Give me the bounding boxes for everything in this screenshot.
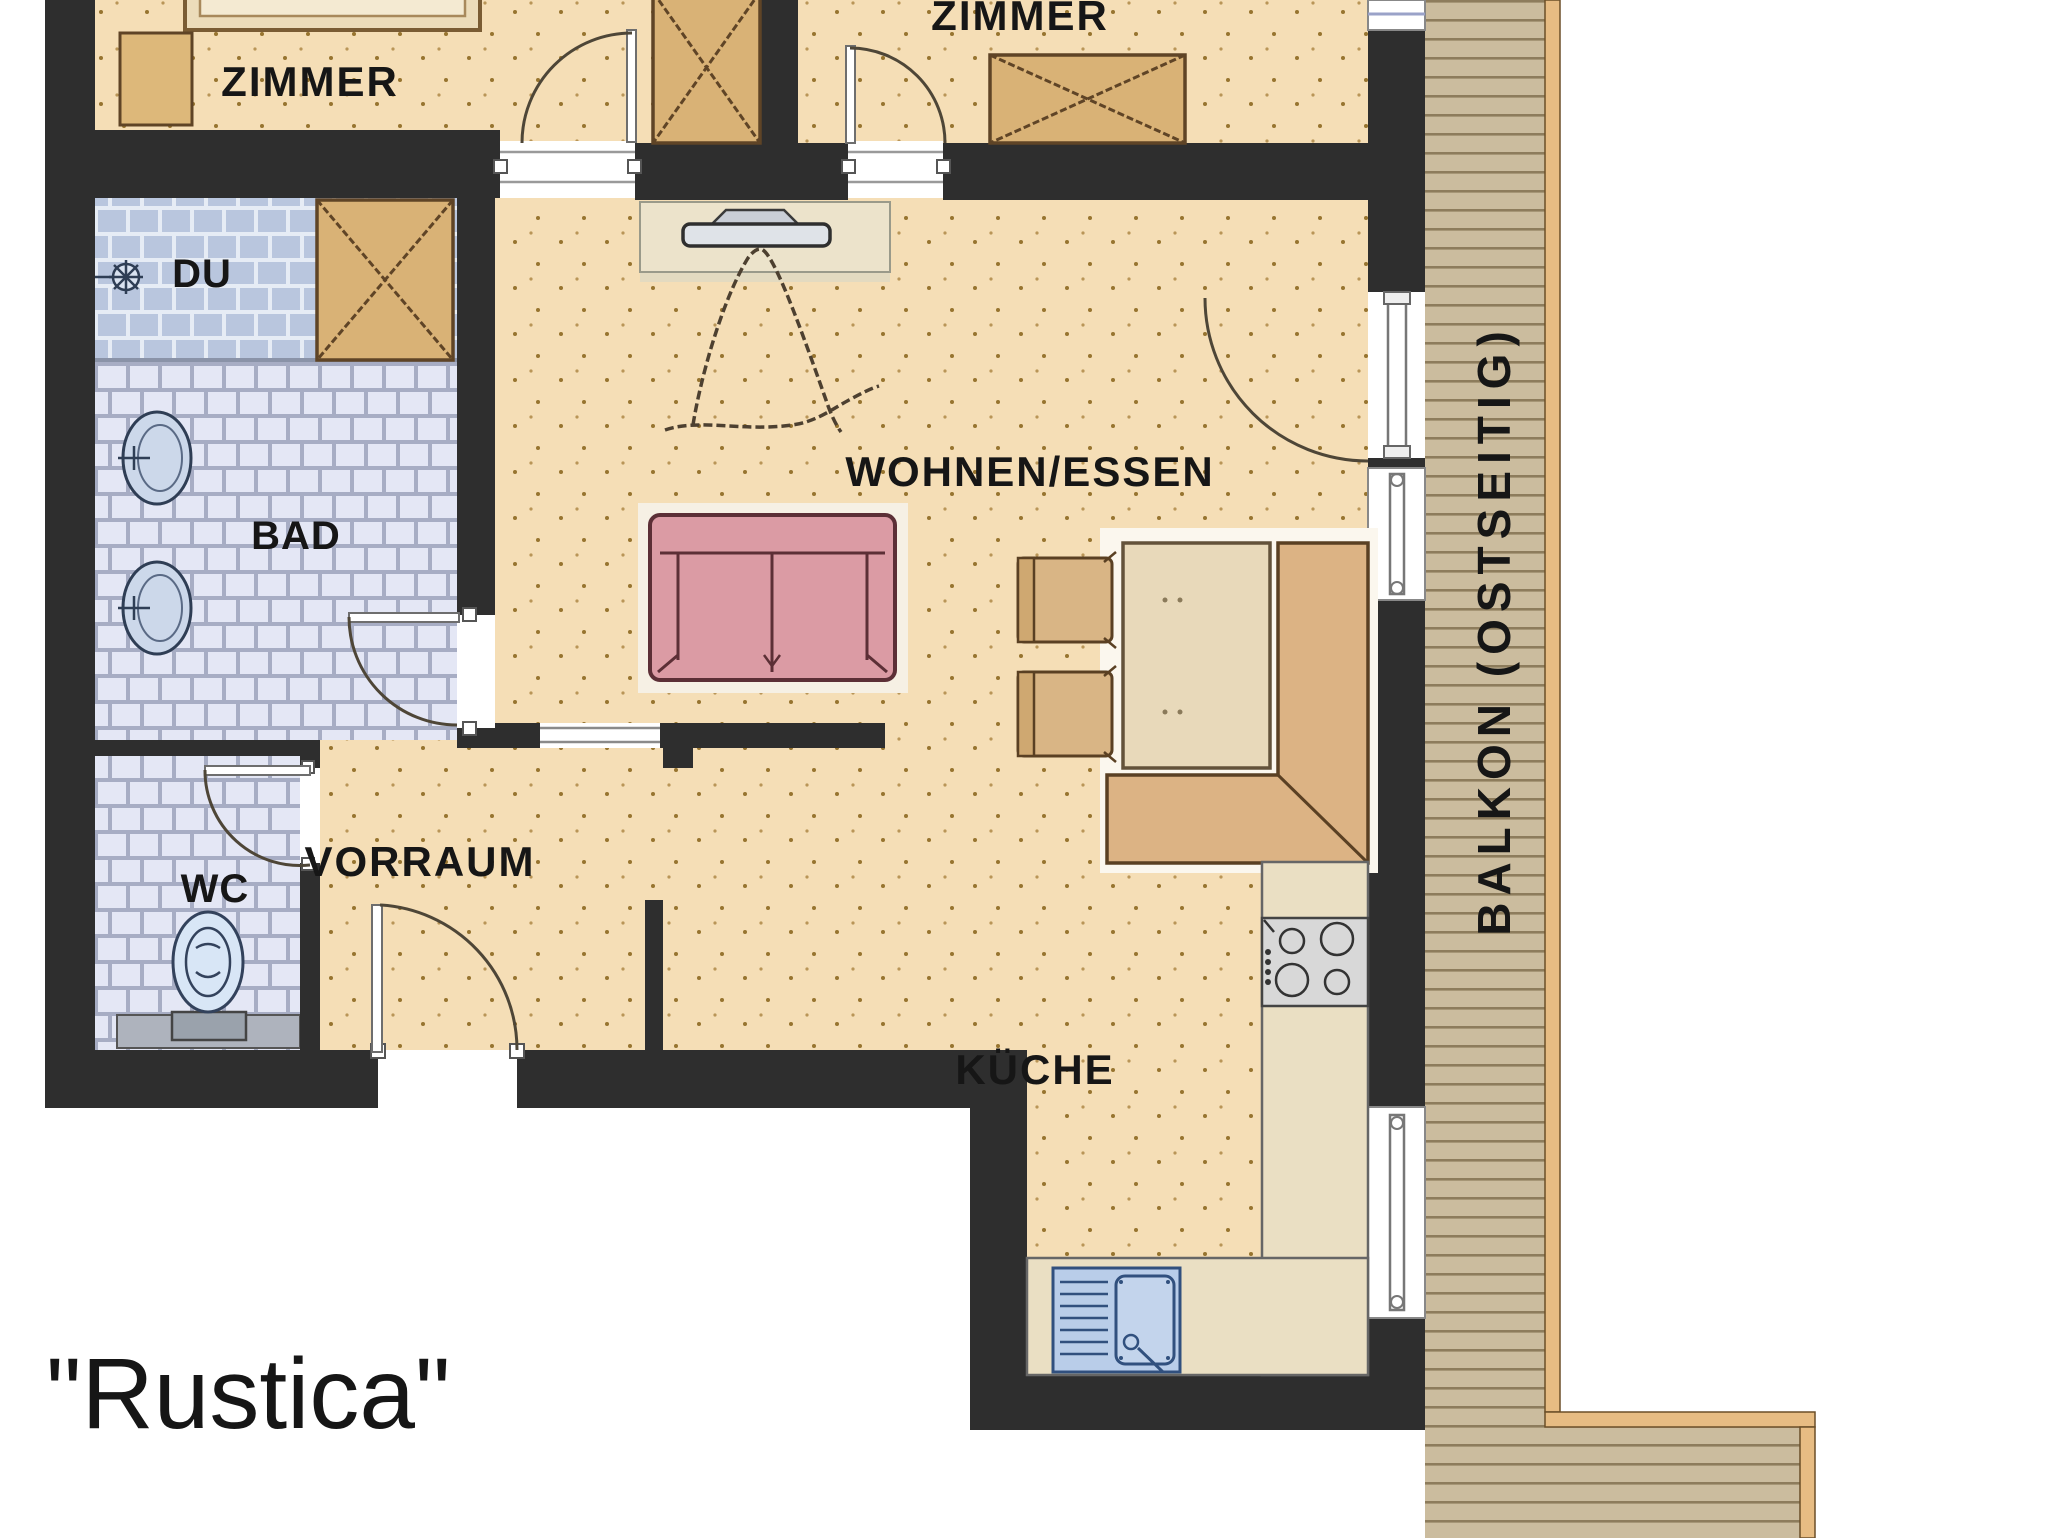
kitchen-sink-icon <box>1053 1268 1180 1372</box>
tv-icon <box>683 224 830 246</box>
balcony-label: BALKON (OSTSEITIG) <box>1468 324 1520 936</box>
room-label-living: WOHNEN/ESSEN <box>845 448 1214 495</box>
dining-table <box>1123 543 1270 768</box>
toilet-icon <box>172 912 246 1040</box>
wall-exterior-bottom-left <box>45 1050 1027 1108</box>
wall-bedroom-left-bottom <box>95 130 500 198</box>
wall-hall-partition-stub <box>663 748 693 768</box>
chair-2 <box>1018 666 1116 762</box>
wall-kitchen-bottom <box>970 1375 1425 1430</box>
plan-name: "Rustica" <box>46 1338 450 1450</box>
room-label-bathroom: BAD <box>251 514 341 558</box>
stove-icon <box>1262 918 1368 1006</box>
wall-hall-kitchen-partition <box>645 900 663 1050</box>
room-label-kitchen: KÜCHE <box>955 1046 1114 1093</box>
door-hall-living <box>540 723 660 748</box>
wall-right-upper <box>1368 30 1425 292</box>
window-kitchen <box>1368 1107 1425 1318</box>
room-label-bedroom-right: ZIMMER <box>931 0 1109 39</box>
room-label-bedroom-left: ZIMMER <box>221 58 399 105</box>
hall-floor <box>320 740 495 1050</box>
wall-bedroom-right-bottom <box>943 143 1368 200</box>
closet-bedroom-right-icon <box>990 55 1185 143</box>
balcony-deck-extension <box>1545 1427 1800 1538</box>
floorplan-drawing: ZIMMER ZIMMER WOHNEN/ESSEN VORRAUM KÜCHE… <box>0 0 2048 1538</box>
wall-mid-top <box>635 143 848 200</box>
nightstand <box>120 33 192 125</box>
tv-sideboard <box>640 202 890 282</box>
wall-exterior-left <box>45 0 95 1108</box>
wall-closet-divider <box>760 0 798 145</box>
room-label-shower: DU <box>172 252 232 296</box>
balcony-border-right <box>1545 0 1560 1412</box>
window-top-cut <box>1368 0 1425 30</box>
wall-bath-wc-divider <box>95 740 320 756</box>
room-label-wc: WC <box>181 867 250 911</box>
balcony-border-step <box>1545 1412 1815 1427</box>
wall-hall-partition-b <box>660 723 885 748</box>
balcony-border-bottom-right <box>1800 1427 1815 1538</box>
bed <box>185 0 480 30</box>
tv-stand-icon <box>712 210 798 224</box>
room-label-hallway: VORRAUM <box>305 838 536 885</box>
closet-shower-icon <box>317 200 453 360</box>
wall-right-lower <box>1368 1318 1425 1430</box>
floorplan-page: ZIMMER ZIMMER WOHNEN/ESSEN VORRAUM KÜCHE… <box>0 0 2048 1538</box>
chair-1 <box>1018 552 1116 648</box>
sofa <box>638 503 908 693</box>
closet-hall-icon <box>653 0 760 143</box>
